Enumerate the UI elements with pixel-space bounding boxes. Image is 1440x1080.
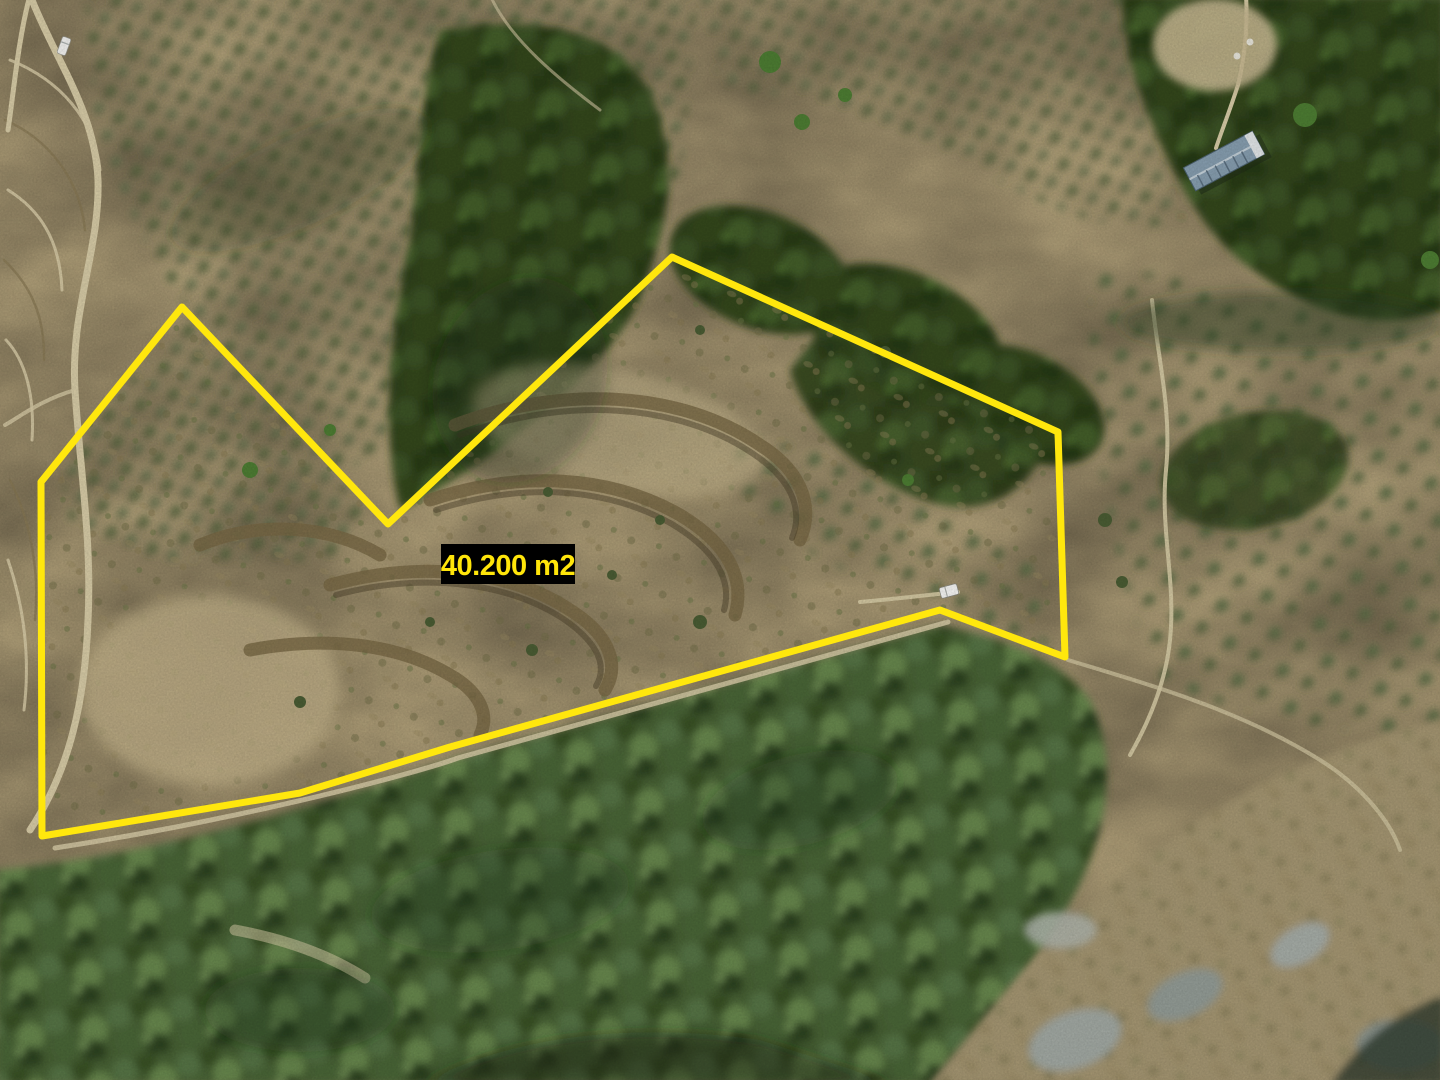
aerial-photo-stage: 40.200 m2 <box>0 0 1440 1080</box>
area-label: 40.200 m2 <box>441 550 575 582</box>
aerial-photo: 40.200 m2 <box>0 0 1440 1080</box>
photo-grain <box>0 0 1440 1080</box>
